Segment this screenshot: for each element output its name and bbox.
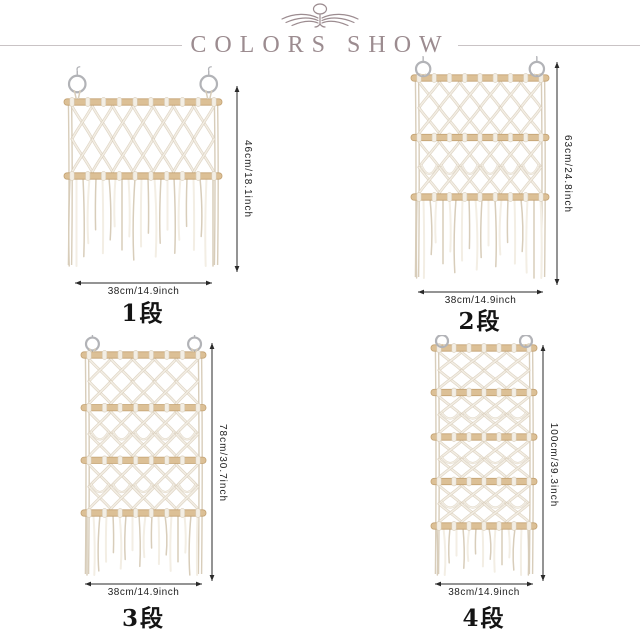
title-rule-left [0, 45, 182, 46]
height-dimension-label: 46cm/18.1inch [242, 140, 253, 218]
tier-label: 3段 [60, 599, 227, 633]
tier-label: 1段 [55, 294, 231, 328]
page-title: COLORS SHOW [182, 32, 457, 59]
product-card-3-tier: 78cm/30.7inch 38cm/14.9inch 3段 [60, 335, 244, 635]
winged-crest-flourish-icon [278, 2, 362, 32]
header: COLORS SHOW [0, 32, 640, 58]
width-dimension-label: 38cm/14.9inch [85, 587, 202, 598]
product-card-4-tier: 100cm/39.3inch 38cm/14.9inch 4段 [420, 335, 594, 635]
width-dimension-label: 38cm/14.9inch [435, 587, 533, 598]
product-size-showcase: COLORS SHOW 46cm/18.1inch 38cm/14.9inch … [0, 0, 640, 640]
product-card-1-tier: 46cm/18.1inch 38cm/14.9inch 1段 [55, 62, 290, 324]
tier-label: 2段 [400, 302, 560, 336]
macrame-hanging-illustration-1-tier [55, 62, 290, 324]
height-dimension-label: 100cm/39.3inch [548, 423, 559, 508]
height-dimension-label: 78cm/30.7inch [217, 424, 228, 502]
title-rule-right [458, 45, 640, 46]
product-card-2-tier: 63cm/24.8inch 38cm/14.9inch 2段 [400, 56, 592, 328]
tier-label: 4段 [420, 599, 548, 633]
height-dimension-label: 63cm/24.8inch [562, 135, 573, 213]
